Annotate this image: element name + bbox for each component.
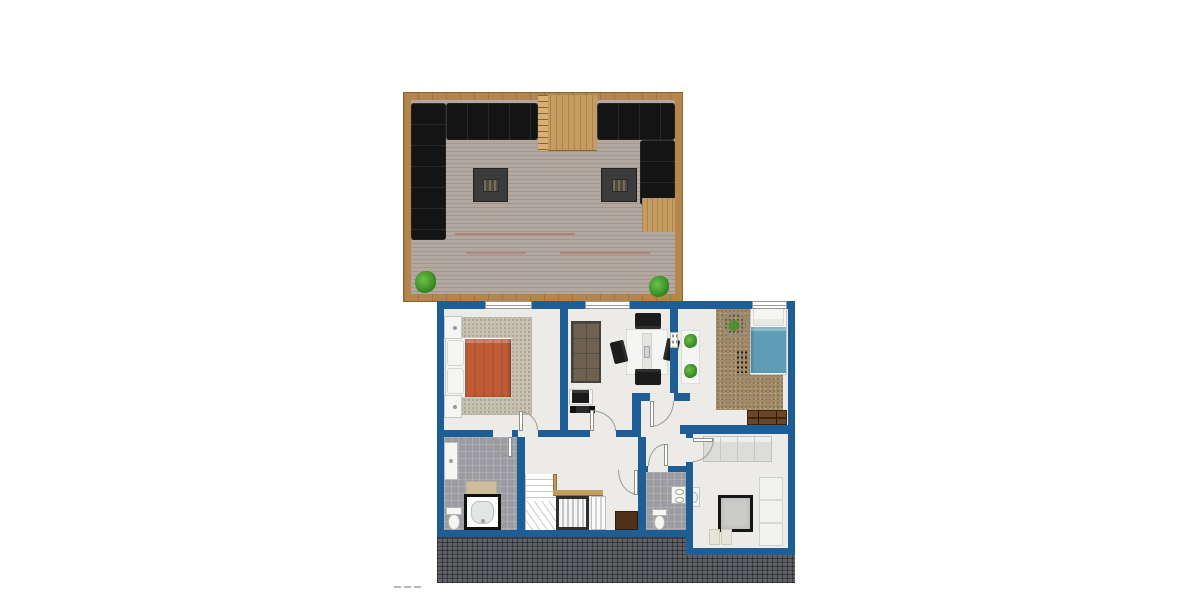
round-basket [722,312,748,337]
wall-bedroomR-bottom [680,425,788,434]
dresser [747,410,787,425]
lounge-doorway-gap [686,438,693,462]
fire-table-grate-icon [483,179,499,192]
dining-chair-top [635,313,661,329]
fire-table-right [601,168,637,202]
door-leaf-living [590,410,594,431]
dot-rug [736,350,749,373]
bed-right-pillow [753,306,784,326]
bed-right-blue-blanket [751,327,786,373]
bed-left-pillow-bottom [447,368,464,394]
door-leaf-wc [664,444,668,466]
bed-left-pillow-top [447,340,464,366]
deck-ladder-strip [538,95,548,151]
door-leaf-bathroom [508,437,512,457]
floor-plan-canvas [0,0,1200,600]
wall-wc-left [638,437,646,531]
sectional-sofa-left-side-arm [411,103,446,240]
dining-chair-bottom [635,369,661,385]
fire-table-grate-icon [612,179,628,192]
bed-left-orange-blanket [465,339,511,397]
wall-outer-bottom-left [437,530,693,537]
deck-wood-patch-right [642,198,675,232]
vestibule-doorway-gap [650,393,674,401]
wall-bathroom-right [517,437,525,530]
wall-hall-top-a [444,430,493,437]
nightstand-knob-icon [453,405,457,409]
bathtub [464,494,501,530]
sectional-sofa-right-top-arm [597,103,675,140]
deck-board-red-accent-3 [466,252,526,254]
lounge-seat-cushion-1 [709,529,720,545]
faucet-icon [449,459,453,463]
window-bedroom-left [485,301,532,309]
nightstand-top [444,316,462,339]
door-leaf-corridor [634,470,638,495]
black-frame-square-table [718,495,753,532]
drain-icon [481,519,485,523]
bathroom-toilet-bowl [448,514,460,530]
fire-table-left [473,168,508,202]
nightstand-knob-icon [453,326,457,330]
wall-dining-bedroomR [670,307,678,395]
stairs-winder-treads [526,501,557,530]
wall-hall-top-b [512,430,518,437]
living-tan-sofa [571,321,601,383]
table-centerpiece-icon [644,346,650,358]
wall-hall-top-c [538,430,590,437]
wc-doorway-gap [648,466,668,472]
wall-outer-right [788,301,795,555]
sectional-sofa-left-top-arm [446,103,538,140]
bath-mat [466,481,497,495]
deck-board-red-accent-1 [455,233,575,235]
bathroom-vanity [444,442,458,480]
bench-brown [615,511,638,530]
window-living [585,301,630,309]
window-bedroom-right [752,301,787,309]
sectional-sofa-right-side-arm [640,140,675,205]
lounge-seat-cushion-2 [721,529,732,545]
radiator-wall-break [670,332,678,348]
printer-icon [572,390,589,403]
nightstand-bottom [444,395,462,418]
door-leaf-lounge [693,438,713,442]
lounge-white-sofa [759,477,783,546]
door-leaf-bedroom-right [650,401,654,427]
deck-board-red-accent-2 [560,252,650,254]
wardrobe-louvered [556,496,589,530]
wc-toilet-bowl [654,515,665,530]
wall-outer-left [437,301,444,537]
watermark-smudge [394,586,421,588]
wall-bedroomL-dining [560,307,568,430]
door-leaf-bedroom-left [519,411,523,431]
wc-sink-counter [671,486,686,504]
wc-basin-top [675,489,684,495]
wc-basin-bottom [675,497,684,503]
closet-louvered [591,496,606,530]
wall-hall-top-d [616,430,632,437]
wall-lounge-bottom [686,548,795,555]
wall-vestibule-vertical [632,393,641,437]
